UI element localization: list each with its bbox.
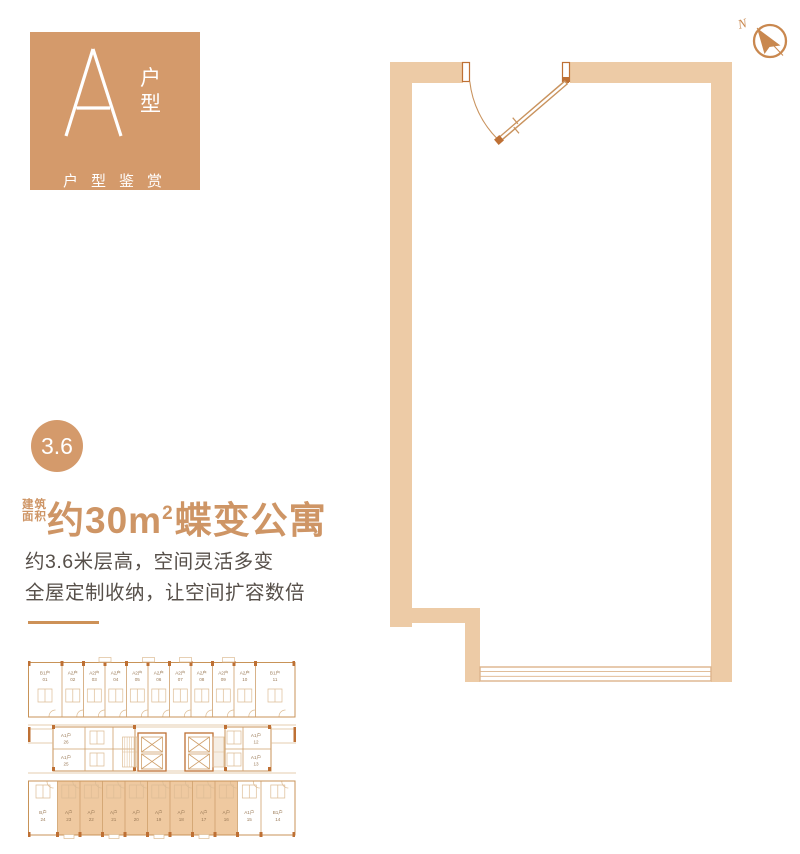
unit-label-type: A户 [222, 809, 230, 816]
unit-label-number: 14 [275, 817, 281, 822]
key-plan: B1户 01 A2户 02 A2户 03 A2户 04 A2户 05 A2户 0… [28, 653, 296, 845]
door-swing-arc [470, 82, 498, 140]
unit-label-type: A户 [65, 809, 73, 816]
unit-label-type: B1户 [40, 670, 50, 677]
wall-top-right [570, 62, 732, 83]
unit-label-type: B户 [39, 809, 47, 816]
unit-label-number: 20 [134, 817, 140, 822]
floorplan-poster: 户 型 户型鉴赏 3.6 建筑 面积 约30m2蝶变公寓 约3.6米层高，空间灵… [0, 0, 800, 854]
compass-tail [757, 28, 783, 56]
entry-door [463, 63, 570, 145]
unit-label-type: A2户 [197, 670, 207, 677]
unit-label-type: B1户 [273, 809, 283, 816]
unit-label-number: 19 [156, 817, 162, 822]
unit-label-type: A2户 [154, 670, 164, 677]
unit-label-type: A户 [200, 809, 208, 816]
wall-step-vertical [465, 623, 480, 682]
bottom-window [480, 667, 711, 681]
unit-label-type: A2户 [111, 670, 121, 677]
unit-label-number: 12 [253, 740, 259, 745]
unit-label-type: B1户 [270, 670, 280, 677]
unit-label-number: 24 [40, 817, 46, 822]
unit-label-number: 01 [42, 677, 48, 682]
unit-label-number: 25 [63, 762, 69, 767]
unit-label-type: A2户 [68, 670, 78, 677]
unit-label-number: 02 [70, 677, 76, 682]
unit-label-type: A户 [155, 809, 163, 816]
unit-label-number: 15 [247, 817, 253, 822]
unit-label-type: A2户 [89, 670, 99, 677]
door-leaf-inner [500, 83, 566, 139]
stair-hatch-right [213, 737, 224, 767]
unit-label-number: 22 [89, 817, 95, 822]
north-compass: N [735, 15, 786, 57]
unit-label-type: A1户 [251, 754, 261, 761]
unit-label-type: A2户 [175, 670, 185, 677]
compass-north-label: N [735, 15, 749, 32]
unit-label-number: 04 [113, 677, 119, 682]
window-frame [480, 667, 711, 681]
unit-label-type: A户 [110, 809, 118, 816]
wall-right [711, 62, 732, 682]
unit-label-number: 16 [224, 817, 230, 822]
unit-label-number: 06 [156, 677, 162, 682]
walls [390, 62, 732, 682]
wall-left [390, 62, 412, 627]
unit-label-type: A2户 [240, 670, 250, 677]
unit-label-number: 09 [221, 677, 227, 682]
top-band-labels: B1户 01 A2户 02 A2户 03 A2户 04 A2户 05 A2户 0… [40, 670, 280, 683]
unit-label-number: 23 [66, 817, 72, 822]
wall-step-horizontal [390, 608, 480, 623]
unit-label-number: 11 [273, 677, 278, 682]
unit-label-type: A1户 [251, 732, 261, 739]
unit-label-number: 05 [135, 677, 141, 682]
unit-label-number: 07 [178, 677, 184, 682]
unit-label-type: A户 [177, 809, 185, 816]
unit-label-type: A户 [87, 809, 95, 816]
unit-label-type: A1户 [61, 754, 71, 761]
unit-label-type: A2户 [132, 670, 142, 677]
core-elevators-stairs [123, 733, 225, 771]
unit-label-number: 17 [201, 817, 207, 822]
unit-label-number: 10 [242, 677, 248, 682]
unit-label-type: A户 [132, 809, 140, 816]
unit-label-number: 26 [63, 740, 69, 745]
unit-label-number: 13 [253, 762, 259, 767]
unit-label-number: 03 [92, 677, 98, 682]
unit-label-number: 18 [179, 817, 185, 822]
door-jamb-left [463, 63, 470, 82]
unit-label-type: A2户 [218, 670, 228, 677]
unit-label-number: 08 [199, 677, 205, 682]
unit-label-type: A1户 [244, 809, 254, 816]
unit-label-number: 21 [111, 817, 117, 822]
unit-label-type: A1户 [61, 732, 71, 739]
